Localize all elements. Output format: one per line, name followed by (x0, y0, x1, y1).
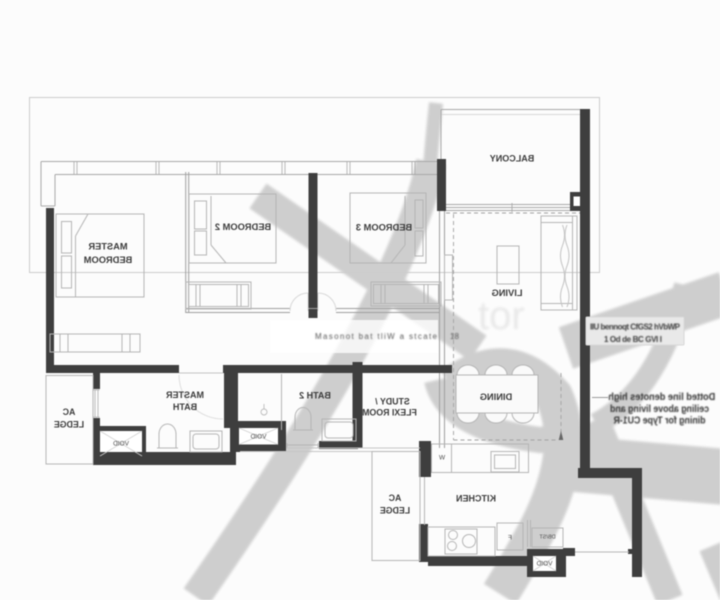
svg-text:STUDY /: STUDY / (375, 397, 410, 407)
svg-text:DB/ST: DB/ST (539, 535, 556, 541)
svg-text:IIU bennoqt CfGS2 hVbWP: IIU bennoqt CfGS2 hVbWP (590, 323, 681, 332)
svg-text:LEDGE: LEDGE (380, 506, 410, 516)
svg-text:AC: AC (388, 493, 401, 503)
svg-text:tor: tor (478, 294, 525, 338)
svg-text:W: W (438, 455, 445, 462)
svg-text:LIVING: LIVING (492, 288, 523, 298)
svg-text:AC: AC (62, 407, 75, 417)
svg-text:MASTER: MASTER (88, 242, 128, 252)
svg-text:dining for Type CU1-R: dining for Type CU1-R (613, 415, 705, 426)
svg-text:BEDROOM 3: BEDROOM 3 (356, 223, 412, 233)
svg-text:VOID: VOID (113, 441, 129, 448)
svg-text:VOID: VOID (536, 561, 552, 568)
svg-text:KITCHEN: KITCHEN (456, 494, 496, 504)
svg-text:BATH: BATH (173, 402, 197, 412)
svg-text:ceiling above living and: ceiling above living and (610, 404, 709, 415)
svg-text:F: F (508, 535, 512, 542)
svg-text:BEDROOM: BEDROOM (83, 255, 132, 265)
svg-text:BALCONY: BALCONY (490, 154, 535, 164)
svg-text:BEDROOM 2: BEDROOM 2 (215, 222, 271, 232)
svg-text:LEDGE: LEDGE (54, 420, 84, 430)
svg-text:MASTER: MASTER (166, 390, 205, 400)
svg-text:VOID: VOID (250, 434, 266, 441)
svg-text:DINING: DINING (480, 392, 513, 402)
svg-text:BATH 2: BATH 2 (299, 390, 331, 400)
svg-text:1 Od de BC GVI I: 1 Od de BC GVI I (604, 335, 662, 344)
svg-text:FLEXI ROOM: FLEXI ROOM (362, 407, 417, 417)
svg-text:18: 18 (450, 332, 459, 341)
svg-text:Dotted line denotes high: Dotted line denotes high (608, 392, 715, 403)
